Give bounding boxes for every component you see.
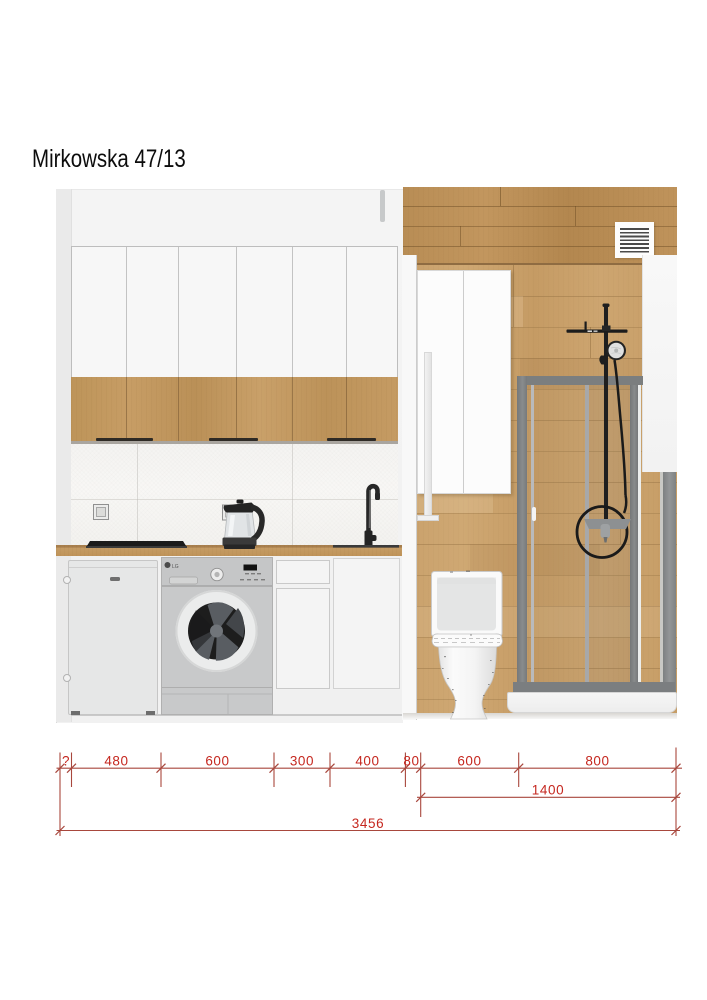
svg-text:480: 480	[104, 754, 128, 769]
svg-text:3456: 3456	[352, 816, 384, 831]
svg-text:300: 300	[290, 754, 314, 769]
svg-text:800: 800	[585, 754, 609, 769]
svg-text:LG: LG	[172, 564, 179, 570]
svg-text:600: 600	[457, 754, 481, 769]
svg-text:80: 80	[403, 754, 419, 769]
svg-text:?: ?	[62, 754, 70, 769]
svg-text:600: 600	[205, 754, 229, 769]
svg-text:400: 400	[355, 754, 379, 769]
svg-text:1400: 1400	[532, 783, 564, 798]
